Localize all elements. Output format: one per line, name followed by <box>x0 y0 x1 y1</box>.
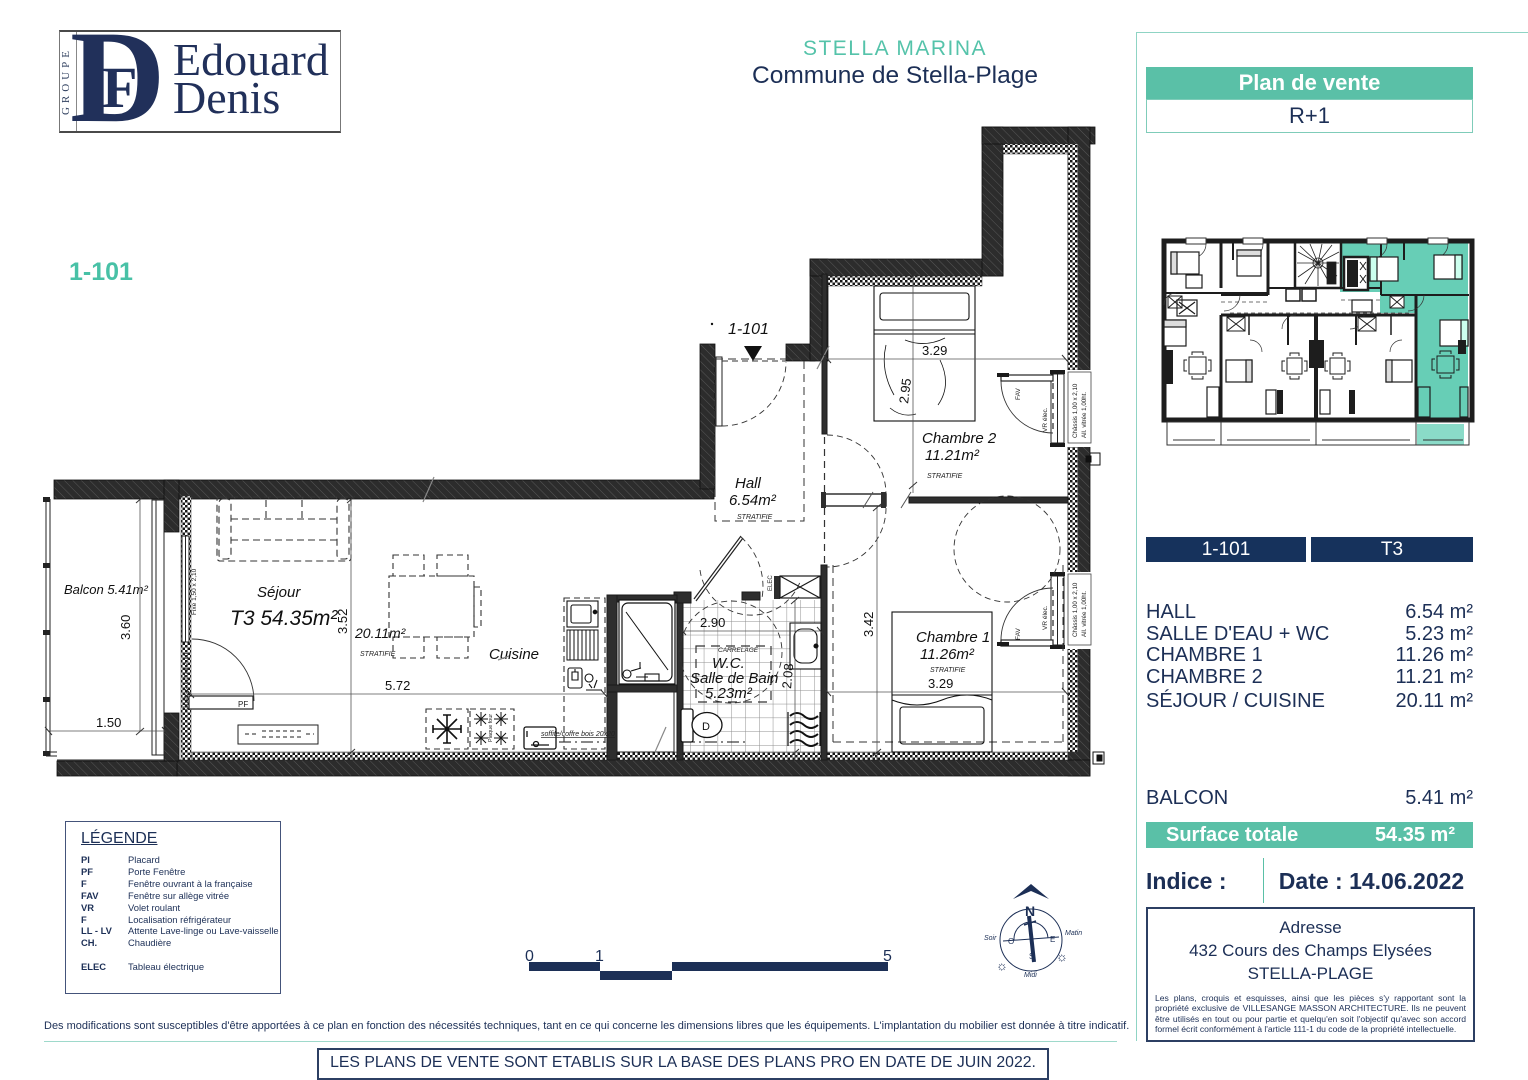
svg-text:☼: ☼ <box>1056 949 1068 964</box>
svg-text:Midi: Midi <box>1024 972 1037 979</box>
svg-text:S: S <box>1029 952 1034 961</box>
svg-text:N: N <box>1025 903 1035 919</box>
svg-text:E: E <box>1050 935 1055 944</box>
svg-text:Soir: Soir <box>984 935 997 942</box>
svg-text:Matin: Matin <box>1065 930 1082 937</box>
svg-text:☼: ☼ <box>996 958 1008 973</box>
svg-text:O: O <box>1008 937 1014 946</box>
